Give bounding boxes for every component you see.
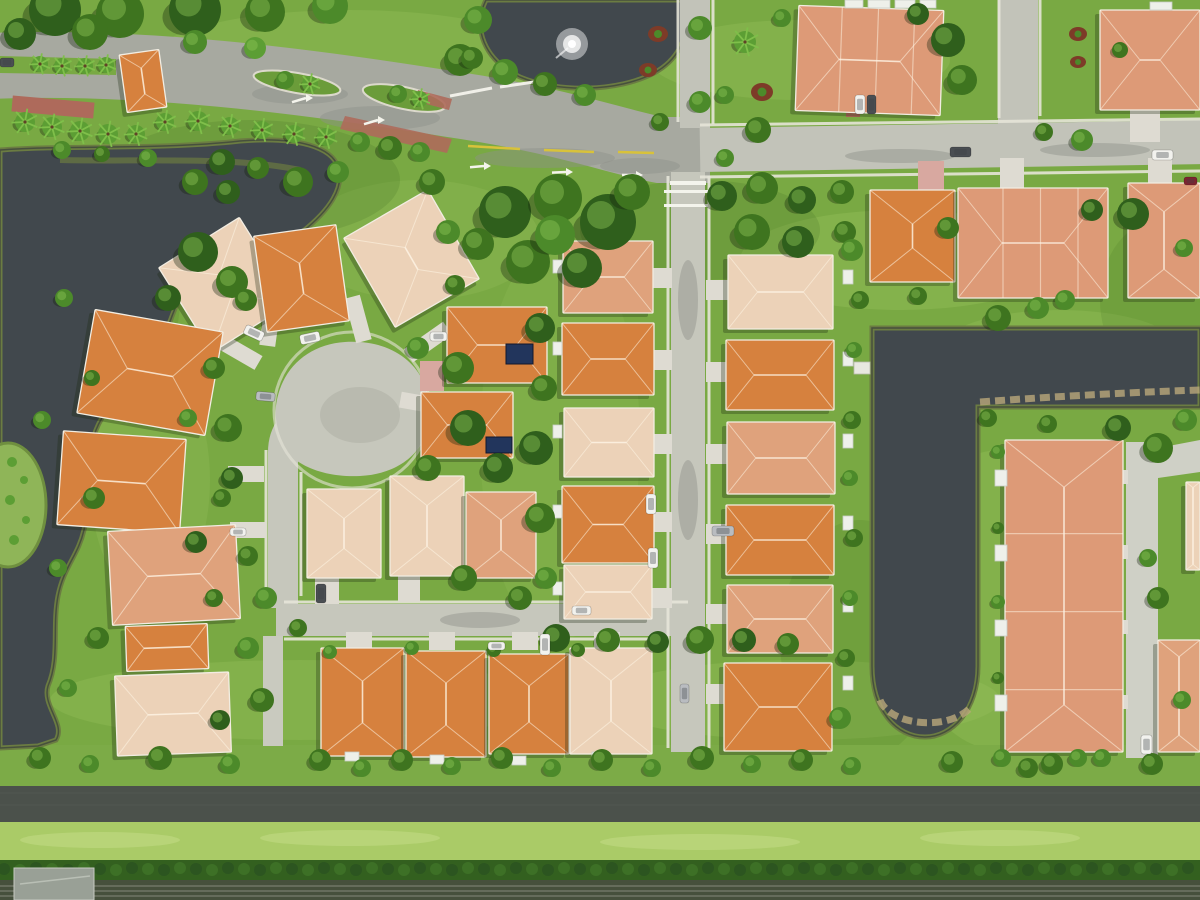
tree-highlight [220, 270, 236, 286]
tree-highlight [988, 308, 1001, 321]
palm-trunk [78, 129, 81, 132]
tree-highlight [940, 220, 951, 231]
tree-highlight [529, 317, 544, 332]
car-glass [869, 99, 874, 110]
tree-highlight [381, 139, 393, 151]
house [302, 489, 381, 582]
tree-highlight [1177, 241, 1186, 250]
hedge-shrub [286, 863, 298, 875]
screened-patio [430, 755, 444, 764]
palm-trunk [418, 97, 421, 100]
tree-highlight [407, 643, 414, 650]
tree-highlight [495, 62, 508, 75]
car-glass [1156, 152, 1169, 158]
grass-mottle [260, 830, 440, 846]
tree-highlight [468, 10, 482, 24]
tree-highlight [287, 171, 302, 186]
tree-highlight [1071, 751, 1080, 760]
palm-frond [29, 64, 40, 65]
tree-highlight [853, 293, 862, 302]
pink-driveway [918, 161, 944, 194]
car-glass [650, 552, 656, 564]
hedge-shrub [1054, 863, 1066, 875]
tree-highlight [844, 592, 852, 600]
house [1095, 10, 1200, 114]
tree-highlight [1095, 751, 1104, 760]
tree-highlight [61, 681, 70, 690]
tree-highlight [1144, 756, 1155, 767]
hedge-shrub [446, 864, 458, 876]
tree-highlight [847, 531, 856, 540]
car-glass [260, 393, 272, 399]
tree-highlight [1175, 693, 1184, 702]
car-glass [491, 644, 501, 649]
tree-highlight [218, 418, 232, 432]
palm-trunk [23, 120, 26, 123]
tree-highlight [241, 549, 251, 559]
hedge-shrub [126, 862, 138, 874]
hedge-shrub [750, 862, 762, 874]
tree-highlight [278, 73, 287, 82]
tree-highlight [718, 151, 727, 160]
tree [9, 535, 19, 545]
tree-highlight [845, 759, 854, 768]
tree-highlight [86, 490, 97, 501]
tree-highlight [536, 75, 548, 87]
tree-highlight [845, 413, 854, 422]
hedge-shrub [254, 864, 266, 876]
palm-frond [218, 126, 230, 127]
screened-patio [995, 695, 1007, 711]
hedge-shrub [302, 864, 314, 876]
tree-highlight [213, 713, 223, 723]
screened-patio [843, 676, 853, 690]
palm-frond [95, 134, 108, 135]
screened-patio [995, 470, 1007, 486]
tree-highlight [86, 372, 94, 380]
car-glass [954, 149, 967, 155]
screened-patio [843, 270, 853, 284]
palm-trunk [106, 132, 109, 135]
bottom-canal [0, 786, 1200, 822]
tree-highlight [8, 22, 24, 38]
house [722, 422, 835, 498]
palm-trunk [196, 119, 199, 122]
screened-patio [845, 0, 863, 8]
tree-highlight [353, 135, 363, 145]
tree-highlight [223, 757, 233, 767]
palm-trunk [50, 125, 53, 128]
tree-highlight [418, 458, 431, 471]
car-glass [233, 530, 243, 535]
palm-trunk [134, 132, 137, 135]
hedge-shrub [574, 863, 586, 875]
tree-highlight [1021, 761, 1031, 771]
tree-highlight [910, 6, 921, 17]
hedge-shrub [494, 864, 506, 876]
hedge-shrub [926, 864, 938, 876]
tree-highlight [206, 360, 217, 371]
tree-highlight [844, 242, 855, 253]
screened-patio [512, 756, 526, 765]
hedge-shrub [1150, 863, 1162, 875]
hedge-shrub [814, 863, 826, 875]
palm-trunk [83, 64, 86, 67]
car-glass [682, 688, 687, 699]
hedge-shrub [1118, 864, 1130, 876]
palm-trunk [163, 120, 166, 123]
tree-highlight [775, 11, 784, 20]
tree-highlight [1044, 756, 1055, 767]
tree-highlight [455, 415, 473, 433]
car [1184, 177, 1197, 185]
car-glass [1143, 739, 1150, 750]
tree-highlight [691, 19, 703, 31]
tree-highlight [253, 691, 265, 703]
car-glass [648, 498, 654, 510]
palm-frond [299, 84, 310, 85]
house [52, 430, 187, 537]
hedge-shrub [318, 862, 330, 874]
tree-highlight [454, 568, 467, 581]
tree-highlight [464, 50, 475, 61]
grass-mottle [600, 834, 800, 850]
palm-trunk [324, 135, 327, 138]
tree-highlight [207, 591, 216, 600]
tree-highlight [599, 631, 611, 643]
tree-highlight [995, 751, 1004, 760]
tree-highlight [466, 232, 482, 248]
tree-highlight [151, 749, 163, 761]
yellow-line [618, 152, 654, 153]
tree-highlight [786, 230, 802, 246]
car [316, 584, 326, 603]
hedge-shrub [1182, 862, 1194, 874]
hedge-shrub [894, 862, 906, 874]
hedge-shrub [270, 862, 282, 874]
tree-highlight [1084, 202, 1095, 213]
palm-frond [185, 121, 198, 122]
car [867, 95, 876, 114]
palm-trunk [292, 132, 295, 135]
tree [22, 516, 30, 524]
hedge-shrub [910, 863, 922, 875]
tree [5, 495, 15, 505]
tree-highlight [258, 590, 269, 601]
mulch-plant [758, 88, 767, 97]
tree-highlight [77, 19, 95, 37]
hedge-shrub [190, 863, 202, 875]
palm-frond [730, 42, 745, 43]
tree-highlight [1037, 125, 1046, 134]
road-wear [600, 158, 680, 174]
tree-highlight [1178, 412, 1189, 423]
tree-highlight [711, 185, 726, 200]
driveway [1000, 158, 1024, 188]
road-wear [678, 460, 698, 540]
tree-highlight [594, 752, 605, 763]
tree-highlight [240, 640, 251, 651]
tree-highlight [735, 631, 747, 643]
house [557, 323, 654, 399]
hedge-shrub [622, 863, 634, 875]
car-glass [1187, 179, 1195, 184]
lane-arrow [552, 172, 566, 173]
palm-frond [282, 134, 294, 135]
palm-frond [124, 134, 136, 135]
tree-highlight [792, 190, 806, 204]
tree-highlight [587, 201, 615, 229]
tree-highlight [540, 180, 564, 204]
tree-highlight [185, 172, 198, 185]
tree-highlight [186, 33, 198, 45]
road-wear [440, 612, 520, 628]
house [723, 255, 833, 333]
cul-de-sac-wear [320, 387, 400, 443]
hedge-shrub [1134, 862, 1146, 874]
tree-highlight [645, 761, 654, 770]
solar-panel [486, 437, 512, 453]
crosswalk-line [664, 190, 708, 193]
tree-highlight [794, 752, 805, 763]
tree-highlight [540, 220, 560, 240]
tree-highlight [1147, 437, 1162, 452]
hedge-shrub [206, 864, 218, 876]
aerial-photo-canvas [0, 0, 1200, 900]
car-glass [857, 99, 863, 110]
hedge-shrub [846, 862, 858, 874]
palm-frond [314, 137, 326, 138]
hedge-shrub [414, 862, 426, 874]
house [1000, 440, 1123, 756]
house [103, 525, 241, 630]
tree-highlight [212, 152, 225, 165]
palm-frond [51, 66, 62, 67]
mulch-plant [645, 67, 652, 74]
hedge-shrub [958, 863, 970, 875]
car [256, 391, 276, 402]
tree-highlight [247, 40, 258, 51]
screened-patio [843, 516, 853, 530]
tree-highlight [619, 179, 637, 197]
tree-highlight [51, 561, 60, 570]
tree-highlight [486, 193, 512, 219]
screened-patio [345, 752, 359, 761]
hedge-shrub [462, 862, 474, 874]
tree-highlight [445, 759, 454, 768]
hedge-shrub [110, 864, 122, 876]
hedge-shrub [1102, 863, 1114, 875]
hedge-shrub [1086, 862, 1098, 874]
screened-patio [553, 425, 562, 438]
boat-dock [854, 362, 870, 374]
car [540, 634, 550, 655]
hedge-shrub [798, 862, 810, 874]
tree-highlight [291, 621, 300, 630]
hedge-shrub [526, 863, 538, 875]
house [721, 340, 834, 414]
hedge-shrub [542, 864, 554, 876]
tree-highlight [250, 160, 261, 171]
house [484, 654, 569, 758]
tree-highlight [944, 754, 955, 765]
house [385, 476, 464, 580]
screened-patio [843, 434, 853, 448]
hedge-shrub [174, 862, 186, 874]
tree-highlight [935, 27, 952, 44]
palm-trunk [308, 82, 311, 85]
hedge-shrub [878, 864, 890, 876]
tree-highlight [529, 507, 544, 522]
hedge-shrub [1006, 863, 1018, 875]
tree-highlight [90, 630, 101, 641]
tree-highlight [394, 752, 405, 763]
tree-highlight [653, 115, 662, 124]
tree-highlight [981, 411, 990, 420]
tree-highlight [141, 151, 150, 160]
hedge-shrub [238, 863, 250, 875]
tree-highlight [325, 647, 332, 654]
tree [7, 457, 17, 467]
house [721, 505, 834, 579]
hedge-shrub [158, 864, 170, 876]
tree-highlight [238, 292, 249, 303]
tree-highlight [188, 534, 199, 545]
lane-arrow [470, 166, 484, 167]
car-glass [576, 608, 587, 613]
tree-highlight [446, 356, 462, 372]
tree-highlight [577, 87, 588, 98]
hedge-shrub [510, 862, 522, 874]
tree-highlight [1041, 417, 1050, 426]
hedge-shrub [718, 863, 730, 875]
tree-highlight [718, 88, 727, 97]
tree-highlight [1058, 293, 1068, 303]
fountain-jet [568, 40, 576, 48]
hedge-shrub [654, 862, 666, 874]
tree-highlight [993, 597, 1000, 604]
tree-highlight [158, 288, 171, 301]
palm-frond [250, 130, 262, 131]
tree-highlight [32, 750, 43, 761]
tree-highlight [413, 145, 423, 155]
tree-highlight [312, 752, 323, 763]
hedge-shrub [382, 863, 394, 875]
car-glass [433, 334, 443, 339]
tree-highlight [780, 636, 791, 647]
crosswalk-line [664, 204, 708, 207]
hedge-shrub [334, 863, 346, 875]
palm-frond [153, 122, 165, 123]
hedge-shrub [702, 862, 714, 874]
hedge-shrub [734, 864, 746, 876]
car [572, 606, 591, 615]
tree-highlight [844, 472, 852, 480]
tree-highlight [410, 340, 421, 351]
tree-highlight [391, 87, 400, 96]
screened-patio [1150, 2, 1172, 10]
house [114, 49, 167, 117]
hedge-shrub [1166, 864, 1178, 876]
hedge-shrub [606, 862, 618, 874]
tree-highlight [693, 749, 705, 761]
house [249, 225, 350, 337]
tree-highlight [1150, 590, 1161, 601]
tree-highlight [837, 224, 848, 235]
tree [20, 476, 28, 484]
tree-highlight [96, 148, 104, 156]
tree-highlight [511, 589, 523, 601]
hedge-shrub [830, 864, 842, 876]
tree-highlight [750, 176, 766, 192]
car [0, 58, 14, 67]
tree-highlight [224, 470, 235, 481]
road-wear [845, 149, 955, 163]
tree-highlight [690, 630, 704, 644]
tree-highlight [512, 246, 534, 268]
tree-highlight [739, 219, 757, 237]
palm-frond [12, 122, 25, 123]
tree-highlight [994, 524, 1000, 530]
palm-trunk [228, 124, 231, 127]
tree-highlight [1074, 132, 1085, 143]
palm-trunk [60, 64, 63, 67]
hedge-shrub [766, 863, 778, 875]
car [230, 528, 246, 536]
aerial-photo [0, 0, 1200, 900]
road-wear [1040, 143, 1150, 157]
tree-highlight [83, 757, 92, 766]
house [565, 648, 652, 758]
hedge-shrub [1022, 864, 1034, 876]
hedge-shrub [590, 864, 602, 876]
screened-patio [995, 545, 1007, 561]
hedge-shrub [430, 863, 442, 875]
tree-highlight [993, 447, 1000, 454]
house [559, 408, 654, 481]
tree-highlight [534, 378, 547, 391]
car [1152, 150, 1173, 160]
hedge-shrub [398, 864, 410, 876]
tree-highlight [911, 289, 920, 298]
tree-highlight [692, 94, 703, 105]
hedge-shrub [142, 863, 154, 875]
palm-trunk [38, 62, 41, 65]
car [712, 526, 734, 536]
road-wear [678, 260, 698, 340]
tree-highlight [1141, 551, 1150, 560]
driveway [512, 632, 538, 650]
tree-highlight [545, 761, 554, 770]
tree-highlight [523, 435, 540, 452]
palm-frond [95, 65, 106, 66]
tree-highlight [833, 183, 845, 195]
car-glass [318, 588, 324, 599]
perimeter-strip [0, 880, 1200, 900]
hedge-shrub [974, 864, 986, 876]
tree-highlight [1121, 202, 1137, 218]
house [120, 624, 209, 676]
mulch-plant [654, 30, 662, 38]
tree-highlight [748, 120, 761, 133]
hedge-shrub [686, 864, 698, 876]
house [557, 486, 654, 567]
tree-highlight [573, 645, 580, 652]
hedge-shrub [942, 862, 954, 874]
palm-frond [74, 66, 85, 67]
car-glass [716, 528, 729, 534]
hedge-shrub [94, 863, 106, 875]
